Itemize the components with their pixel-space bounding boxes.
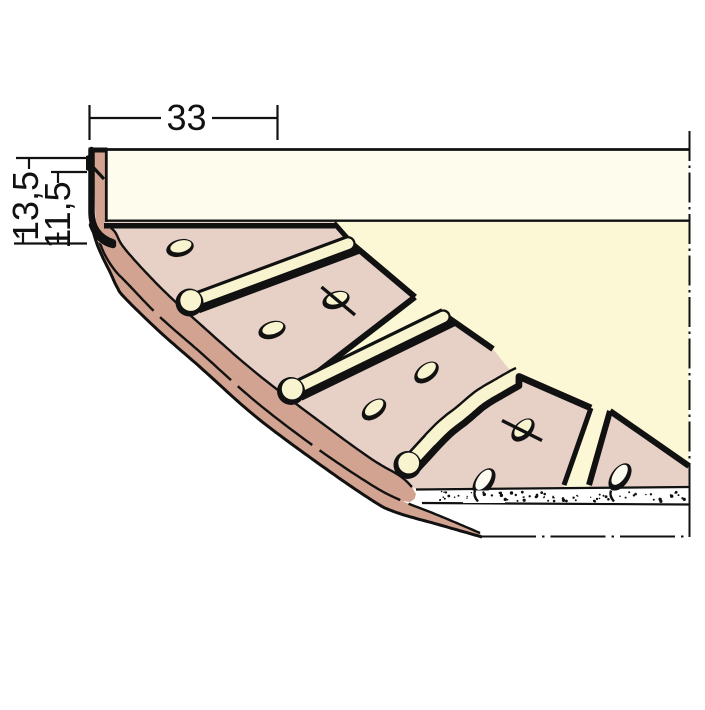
svg-text:11,5: 11,5 [37, 181, 78, 248]
svg-text:33: 33 [166, 97, 206, 138]
